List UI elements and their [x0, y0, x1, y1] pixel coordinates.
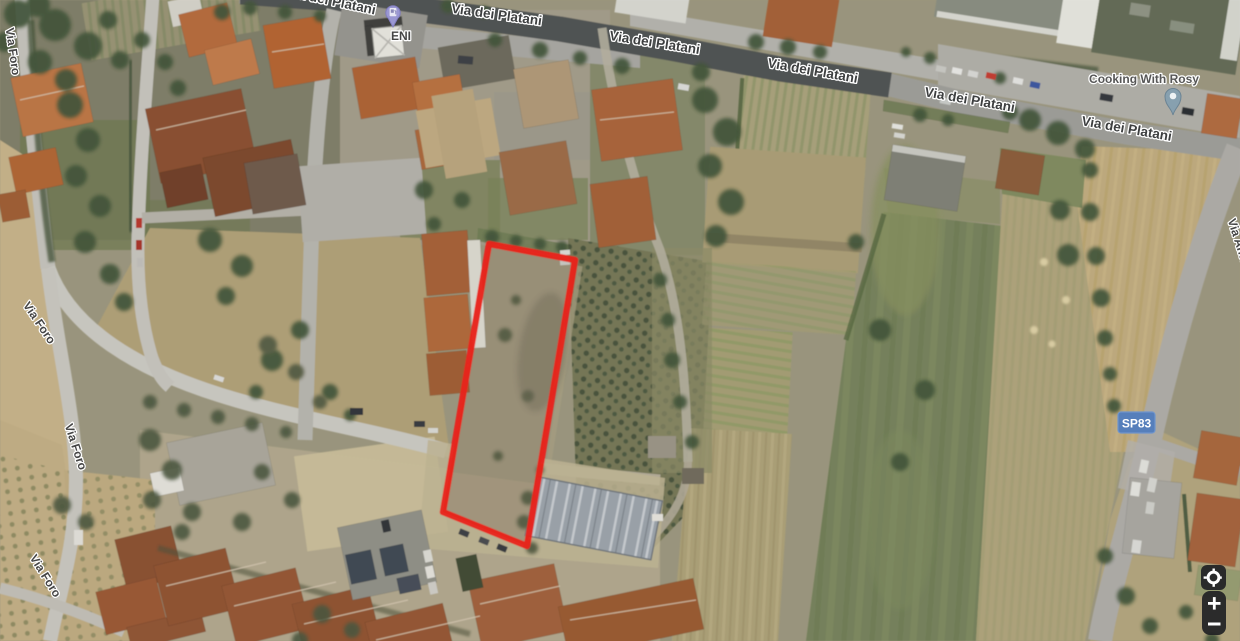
- svg-text:ENI: ENI: [391, 29, 411, 43]
- svg-text:Cooking With Rosy: Cooking With Rosy: [1089, 72, 1199, 86]
- svg-text:SP83: SP83: [1122, 417, 1152, 431]
